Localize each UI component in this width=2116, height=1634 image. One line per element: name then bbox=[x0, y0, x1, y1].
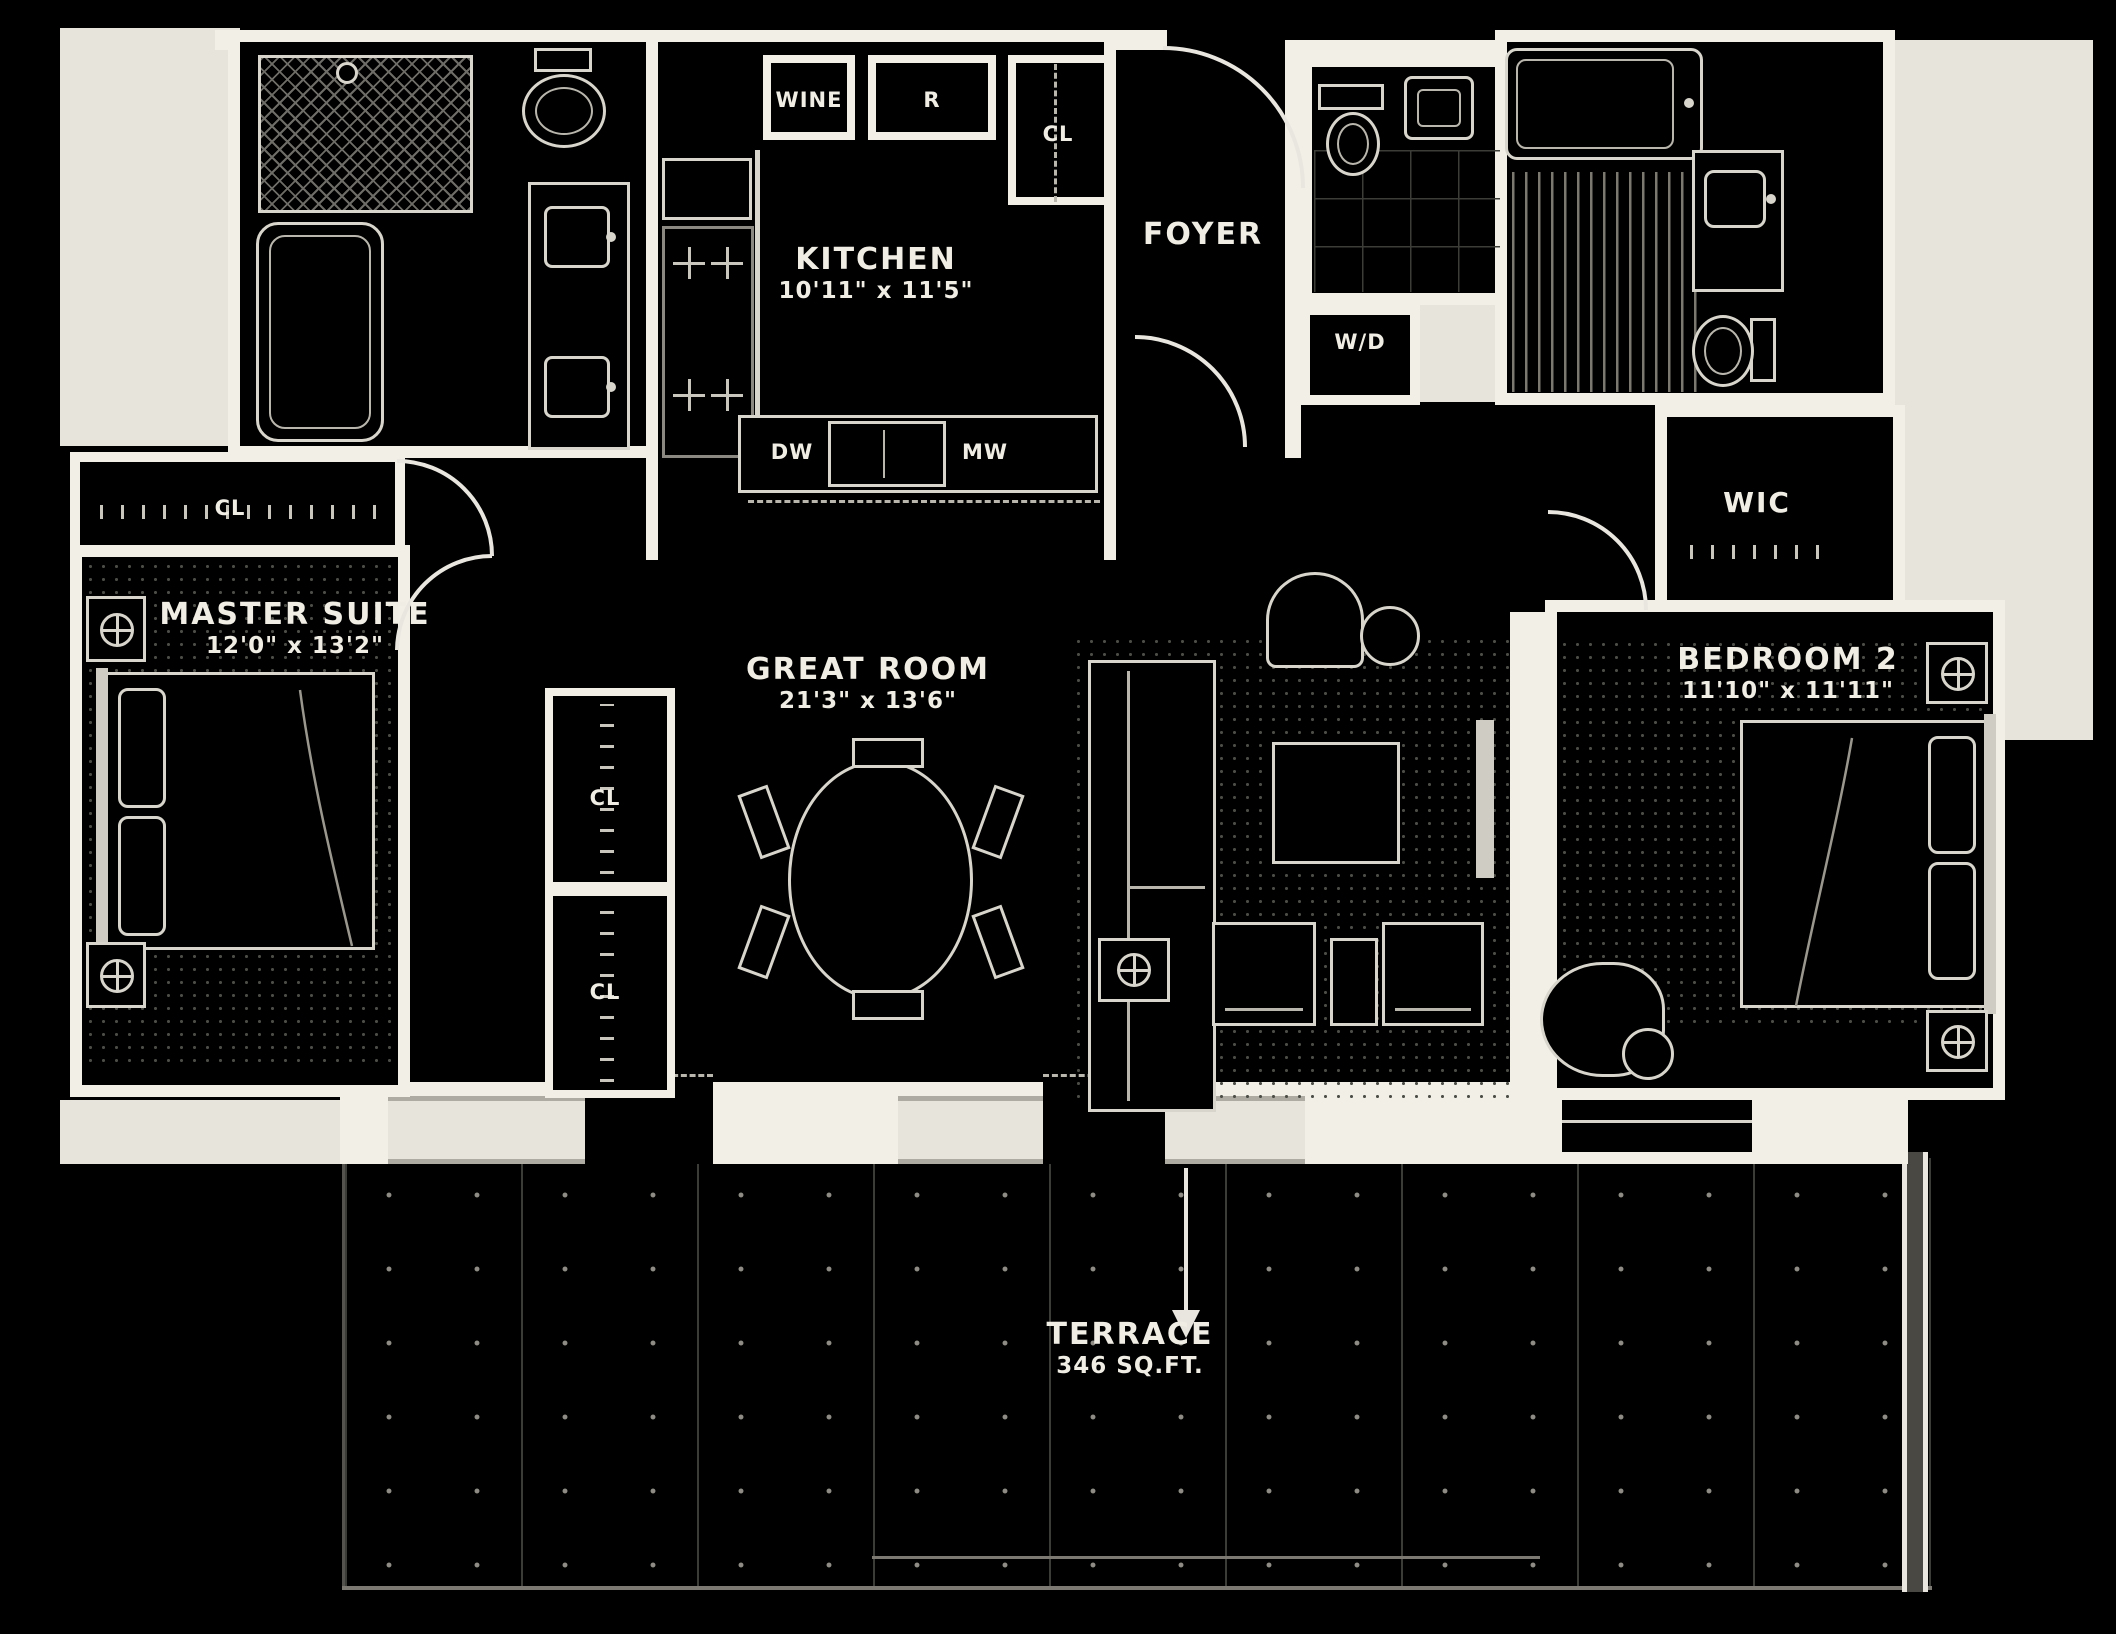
kitchen-label: KITCHEN 10'11" x 11'5" bbox=[736, 243, 1016, 304]
foyer-closet-label: CL bbox=[1006, 122, 1110, 146]
bedroom2-bed-throw bbox=[1796, 738, 1852, 1006]
bedroom2-dims: 11'10" x 11'11" bbox=[1638, 678, 1938, 704]
dishwasher-label: DW bbox=[742, 440, 842, 464]
wic-name: WIC bbox=[1723, 486, 1791, 519]
master-hall-door-arc bbox=[397, 461, 492, 556]
foyer-hall-door-arc bbox=[1135, 337, 1245, 447]
master-closet-text: CL bbox=[215, 496, 246, 520]
master-suite-name: MASTER SUITE bbox=[159, 597, 430, 632]
bedroom2-door-arc bbox=[1548, 512, 1646, 610]
kitchen-name: KITCHEN bbox=[795, 242, 957, 277]
floor-plan: KITCHEN 10'11" x 11'5" FOYER MASTER SUIT… bbox=[0, 0, 2116, 1634]
dishwasher-text: DW bbox=[771, 440, 814, 464]
hall-closet-upper-label: CL bbox=[555, 786, 655, 810]
wic-label: WIC bbox=[1697, 487, 1817, 519]
foyer-label: FOYER bbox=[1128, 218, 1278, 253]
master-closet-label: CL bbox=[180, 496, 280, 520]
kitchen-dims: 10'11" x 11'5" bbox=[736, 278, 1016, 304]
bedroom2-name: BEDROOM 2 bbox=[1677, 642, 1899, 677]
refrigerator-text: R bbox=[923, 88, 940, 112]
great-room-dims: 21'3" x 13'6" bbox=[718, 688, 1018, 714]
foyer-name: FOYER bbox=[1143, 217, 1263, 252]
terrace-area: 346 SQ.FT. bbox=[980, 1353, 1280, 1379]
microwave-label: MW bbox=[935, 440, 1035, 464]
hall-closet-lower-label: CL bbox=[555, 980, 655, 1004]
washer-dryer-label: W/D bbox=[1303, 330, 1417, 354]
wine-label: WINE bbox=[763, 88, 855, 112]
wine-text: WINE bbox=[776, 88, 843, 112]
master-suite-dims: 12'0" x 13'2" bbox=[140, 633, 450, 659]
bedroom2-label: BEDROOM 2 11'10" x 11'11" bbox=[1638, 643, 1938, 704]
foyer-closet-text: CL bbox=[1043, 122, 1074, 146]
hall-closet-lower-text: CL bbox=[590, 980, 621, 1004]
linework-overlay bbox=[0, 0, 2116, 1634]
master-suite-label: MASTER SUITE 12'0" x 13'2" bbox=[140, 598, 450, 659]
great-room-label: GREAT ROOM 21'3" x 13'6" bbox=[718, 653, 1018, 714]
washer-dryer-text: W/D bbox=[1334, 330, 1385, 354]
master-bed-throw bbox=[300, 690, 352, 946]
entry-door-arc bbox=[1163, 48, 1303, 188]
terrace-name: TERRACE bbox=[1047, 1317, 1214, 1352]
refrigerator-label: R bbox=[868, 88, 996, 112]
terrace-label: TERRACE 346 SQ.FT. bbox=[980, 1318, 1280, 1379]
hall-closet-upper-text: CL bbox=[590, 786, 621, 810]
great-room-name: GREAT ROOM bbox=[746, 652, 990, 687]
microwave-text: MW bbox=[962, 440, 1008, 464]
